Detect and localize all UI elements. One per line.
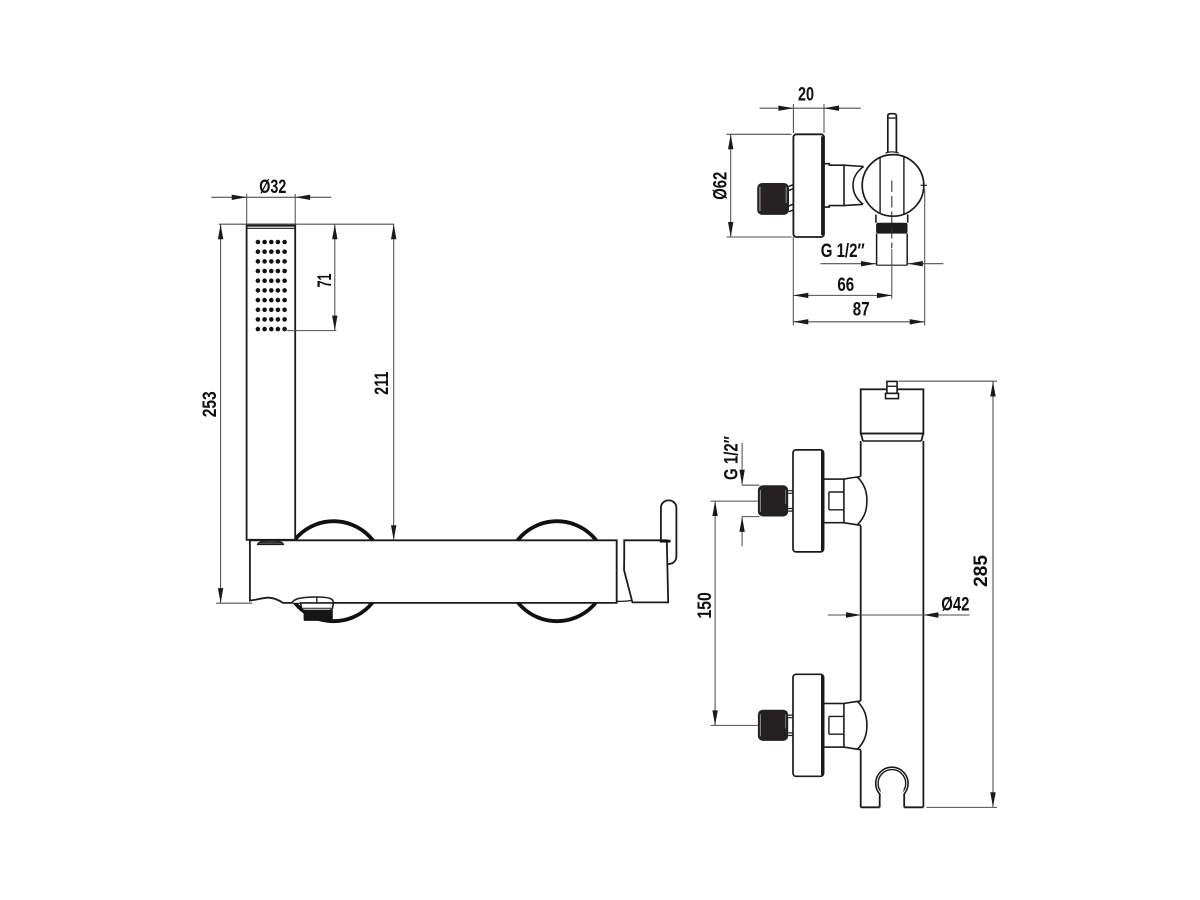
svg-text:Ø32: Ø32: [259, 177, 286, 198]
svg-text:87: 87: [853, 300, 870, 321]
svg-text:Ø42: Ø42: [941, 594, 969, 615]
svg-text:Ø62: Ø62: [711, 172, 732, 200]
svg-text:285: 285: [971, 555, 992, 587]
svg-text:20: 20: [798, 85, 814, 106]
svg-text:150: 150: [695, 592, 716, 619]
svg-text:253: 253: [200, 391, 221, 417]
svg-text:66: 66: [837, 275, 854, 296]
svg-text:G 1/2″: G 1/2″: [722, 436, 743, 480]
svg-text:G 1/2″: G 1/2″: [821, 241, 865, 262]
svg-text:71: 71: [315, 273, 336, 287]
svg-text:211: 211: [372, 371, 393, 395]
